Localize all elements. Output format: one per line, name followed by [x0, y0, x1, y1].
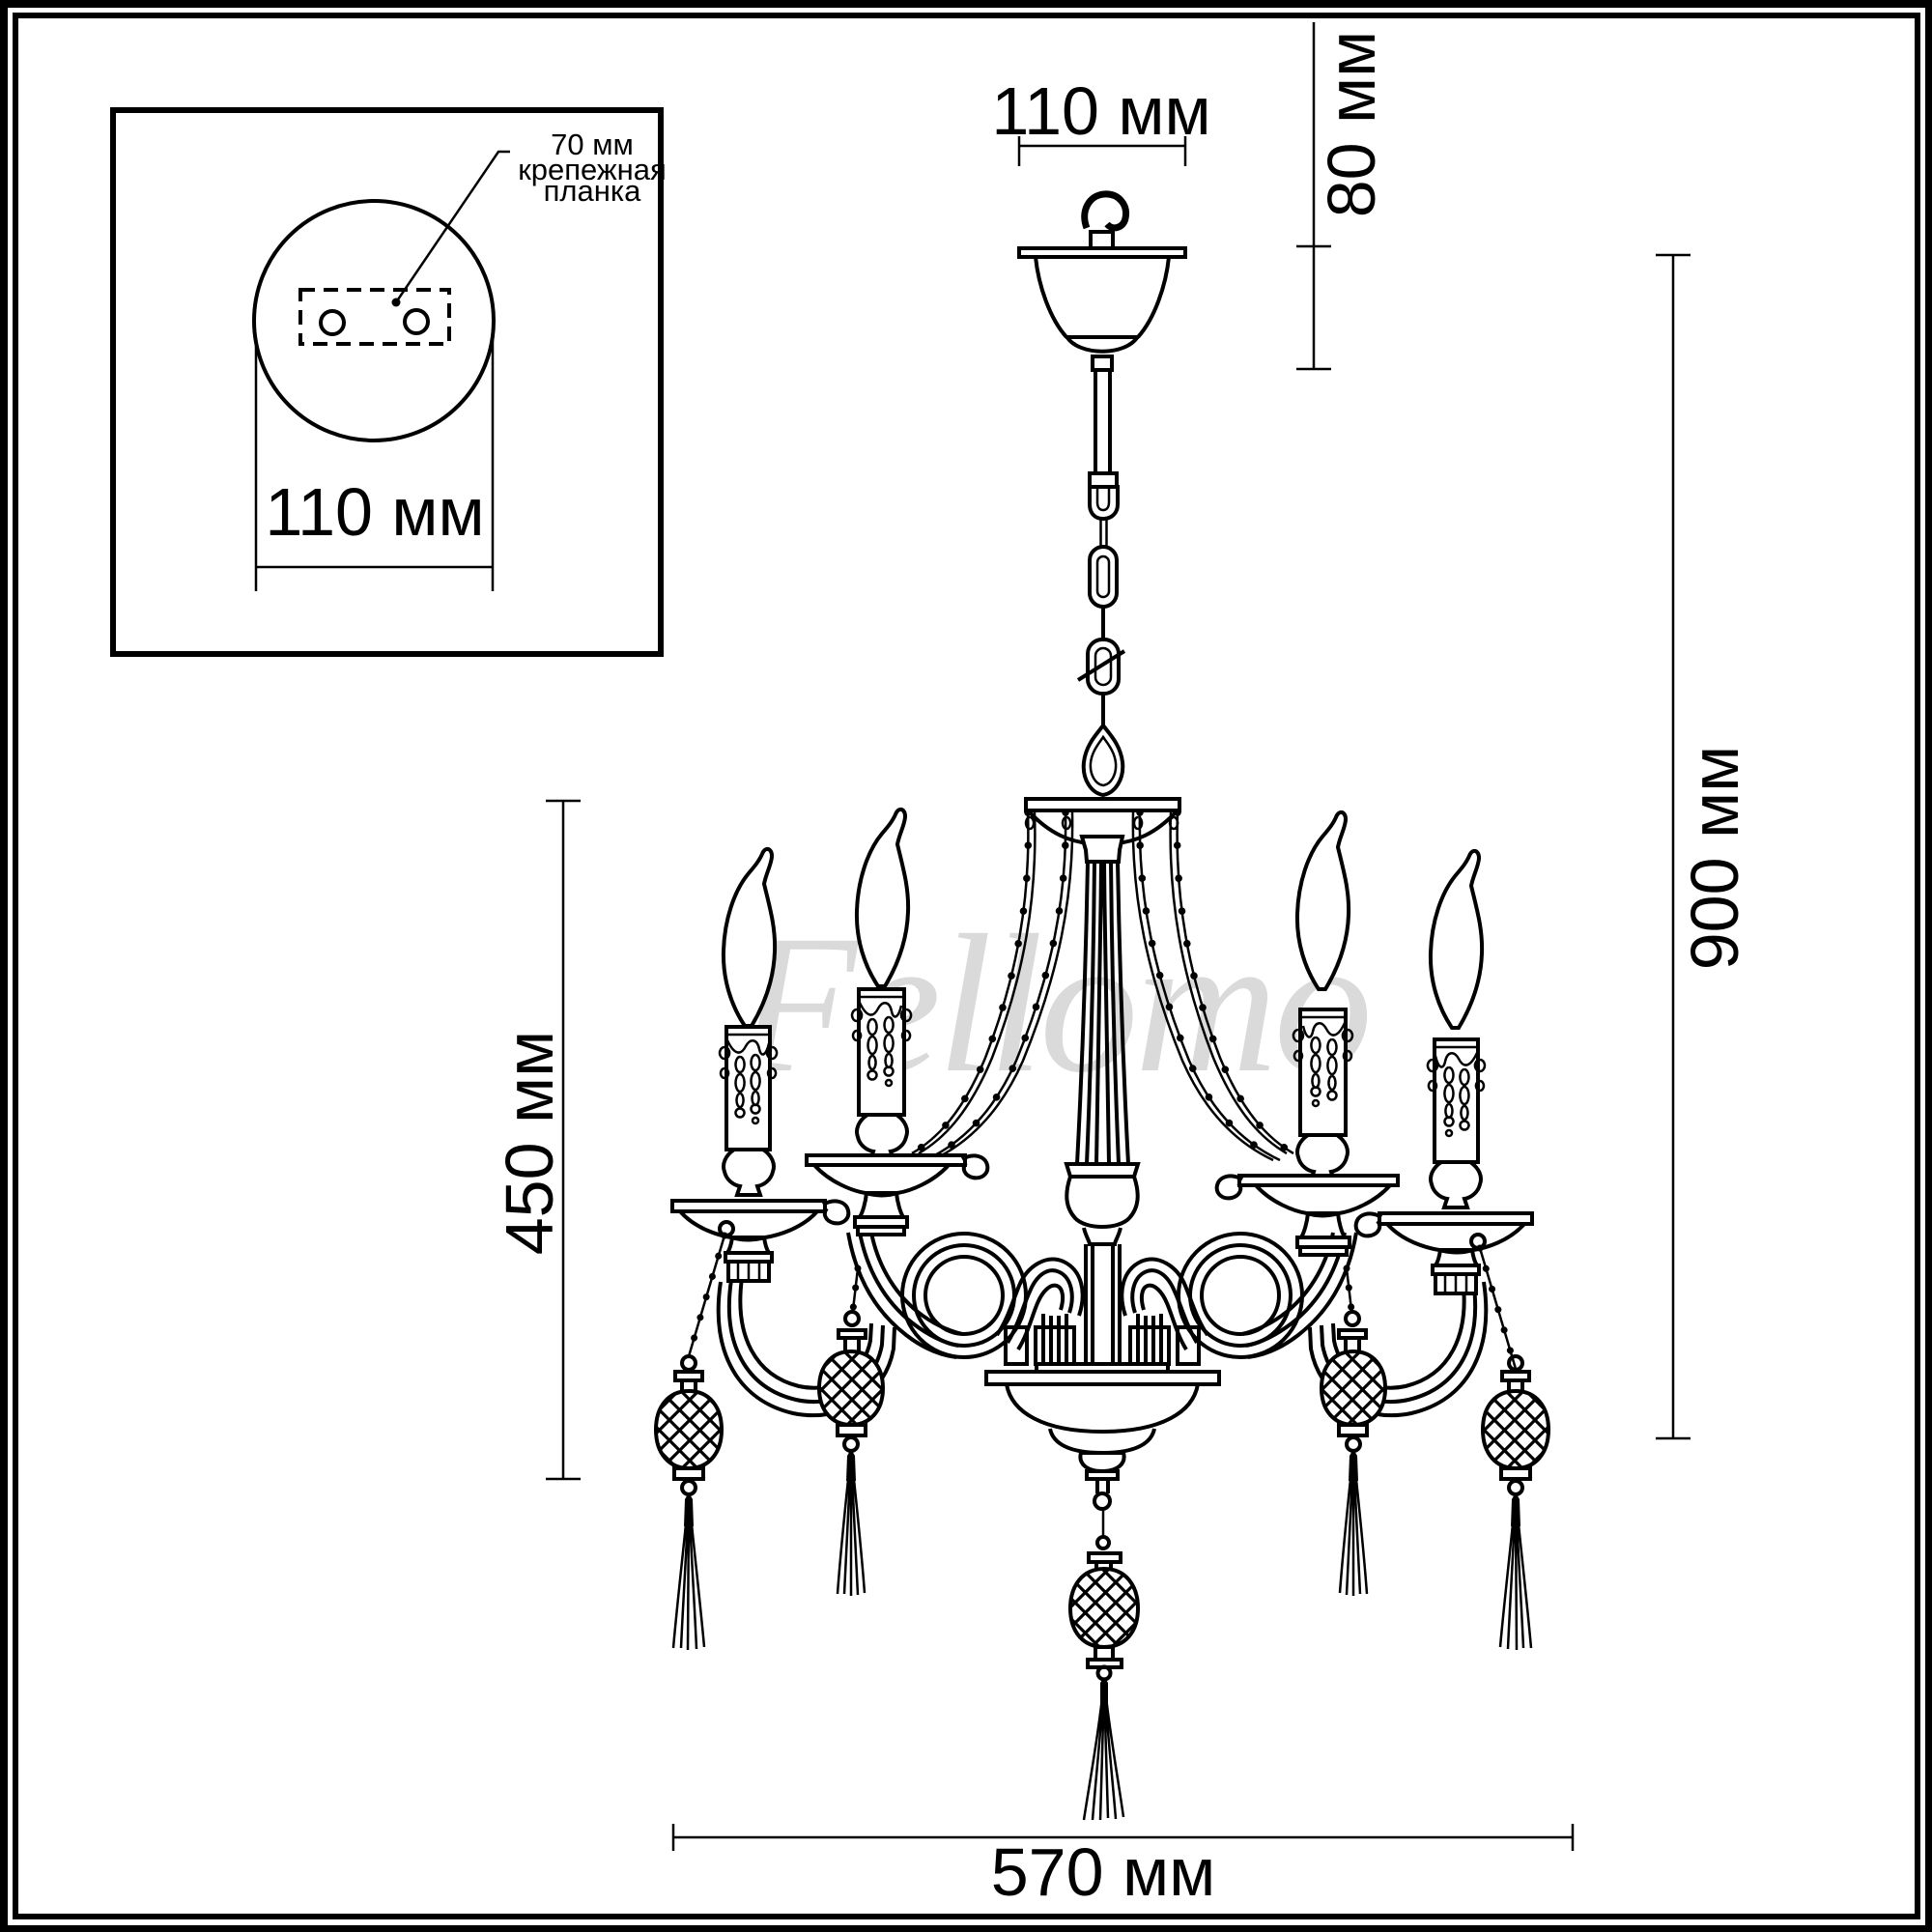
- svg-text:450 мм: 450 мм: [492, 1031, 567, 1256]
- svg-text:110 мм: 110 мм: [991, 73, 1210, 149]
- svg-text:80 мм: 80 мм: [1314, 31, 1389, 218]
- svg-text:570 мм: 570 мм: [991, 1834, 1216, 1910]
- svg-text:110 мм: 110 мм: [265, 474, 484, 550]
- svg-text:планка: планка: [544, 174, 641, 208]
- svg-text:900 мм: 900 мм: [1677, 746, 1752, 971]
- svg-text:Fellomo: Fellomo: [734, 895, 1369, 1114]
